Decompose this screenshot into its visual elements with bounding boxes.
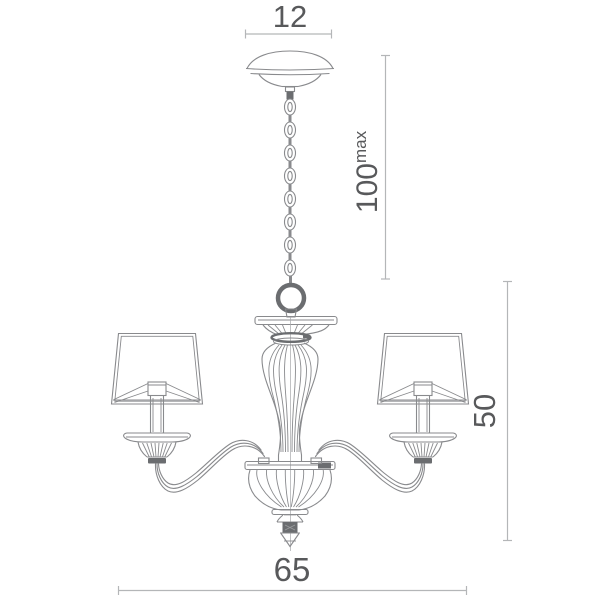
ribbed-bowl [249, 470, 332, 510]
suspension-height-value: 100 [351, 163, 384, 213]
chandelier-diagram: 12 100max 50 65 [0, 0, 600, 601]
bowl-ribs [257, 470, 324, 507]
scroll-arm [155, 440, 269, 492]
body-height-label: 50 [467, 394, 502, 428]
total-width-label: 65 [274, 551, 311, 588]
chain-connector [287, 92, 294, 100]
suspension-height-suffix: max [351, 130, 370, 163]
suspension-chain [285, 99, 296, 286]
top-cap-plate [255, 317, 337, 325]
lamp-shade [112, 334, 203, 405]
baluster-vase [262, 343, 318, 461]
bottom-finial [272, 510, 308, 547]
cup-flutes [143, 443, 172, 457]
drawing-canvas: 12 100max 50 65 [0, 0, 600, 601]
dimension-body-height [503, 282, 512, 541]
ceiling-canopy [246, 51, 334, 100]
hanging-ring [278, 285, 304, 317]
lamp-socket [148, 458, 166, 464]
arm-mount-pad [259, 458, 270, 464]
canopy-width-label: 12 [273, 0, 307, 34]
bobeche [124, 433, 191, 464]
suspension-height-label: 100max [351, 130, 384, 213]
vase-flutes [269, 345, 311, 452]
candle-and-frame [114, 382, 200, 433]
